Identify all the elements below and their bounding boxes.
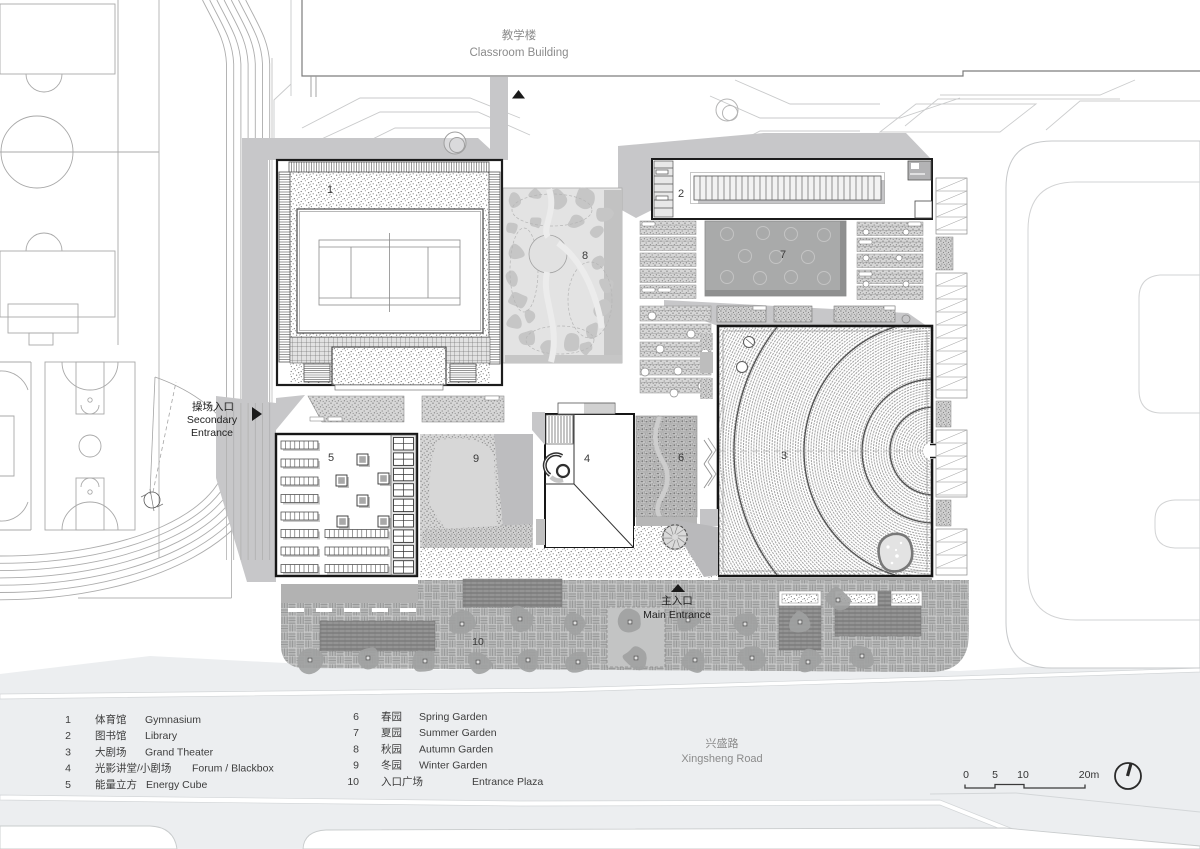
svg-text:Grand Theater: Grand Theater (145, 746, 214, 758)
svg-text:1: 1 (327, 184, 333, 196)
svg-text:Energy Cube: Energy Cube (146, 779, 207, 791)
svg-text:教学楼: 教学楼 (502, 28, 537, 42)
svg-text:Entrance: Entrance (191, 427, 233, 439)
svg-text:10: 10 (1017, 769, 1029, 781)
svg-text:Spring Garden: Spring Garden (419, 711, 487, 723)
svg-text:冬园: 冬园 (381, 759, 402, 772)
svg-text:主入口: 主入口 (661, 595, 693, 607)
svg-text:10: 10 (347, 776, 359, 788)
svg-text:Entrance Plaza: Entrance Plaza (472, 776, 543, 788)
svg-text:图书馆: 图书馆 (95, 729, 127, 742)
svg-text:1: 1 (65, 714, 71, 726)
svg-text:春园: 春园 (381, 711, 402, 723)
svg-text:9: 9 (473, 453, 479, 465)
svg-text:5: 5 (328, 452, 334, 464)
svg-text:3: 3 (781, 450, 787, 462)
svg-text:2: 2 (65, 730, 71, 742)
svg-text:Forum / Blackbox: Forum / Blackbox (192, 763, 274, 775)
svg-text:20m: 20m (1079, 769, 1100, 781)
svg-text:秋园: 秋园 (381, 742, 402, 755)
svg-text:光影讲堂/小剧场: 光影讲堂/小剧场 (95, 762, 171, 775)
svg-text:体育馆: 体育馆 (95, 713, 127, 726)
svg-text:Main Entrance: Main Entrance (643, 609, 711, 621)
svg-text:兴盛路: 兴盛路 (706, 736, 739, 750)
svg-text:7: 7 (780, 249, 786, 261)
svg-text:Library: Library (145, 730, 178, 742)
svg-text:Gymnasium: Gymnasium (145, 714, 201, 726)
svg-text:入口广场: 入口广场 (381, 775, 423, 788)
svg-text:4: 4 (65, 763, 71, 775)
svg-text:Secondary: Secondary (187, 414, 238, 426)
svg-text:Classroom Building: Classroom Building (469, 47, 568, 59)
svg-text:夏园: 夏园 (381, 727, 402, 739)
svg-text:Xingsheng Road: Xingsheng Road (681, 753, 762, 765)
svg-text:Autumn Garden: Autumn Garden (419, 743, 493, 755)
svg-text:7: 7 (353, 727, 359, 739)
svg-text:5: 5 (65, 779, 71, 791)
svg-text:操场入口: 操场入口 (192, 400, 234, 413)
svg-text:8: 8 (353, 743, 359, 755)
svg-text:4: 4 (584, 453, 590, 465)
svg-text:能量立方: 能量立方 (95, 778, 137, 791)
svg-text:2: 2 (678, 188, 684, 200)
svg-text:Winter Garden: Winter Garden (419, 760, 487, 772)
svg-text:大剧场: 大剧场 (95, 745, 127, 758)
svg-text:5: 5 (992, 769, 998, 781)
svg-text:0: 0 (963, 769, 969, 781)
svg-text:9: 9 (353, 760, 359, 772)
svg-text:6: 6 (353, 711, 359, 723)
svg-text:10: 10 (472, 636, 484, 648)
svg-text:6: 6 (678, 452, 684, 464)
svg-text:8: 8 (582, 250, 588, 262)
svg-text:Summer Garden: Summer Garden (419, 727, 497, 739)
svg-text:3: 3 (65, 746, 71, 758)
